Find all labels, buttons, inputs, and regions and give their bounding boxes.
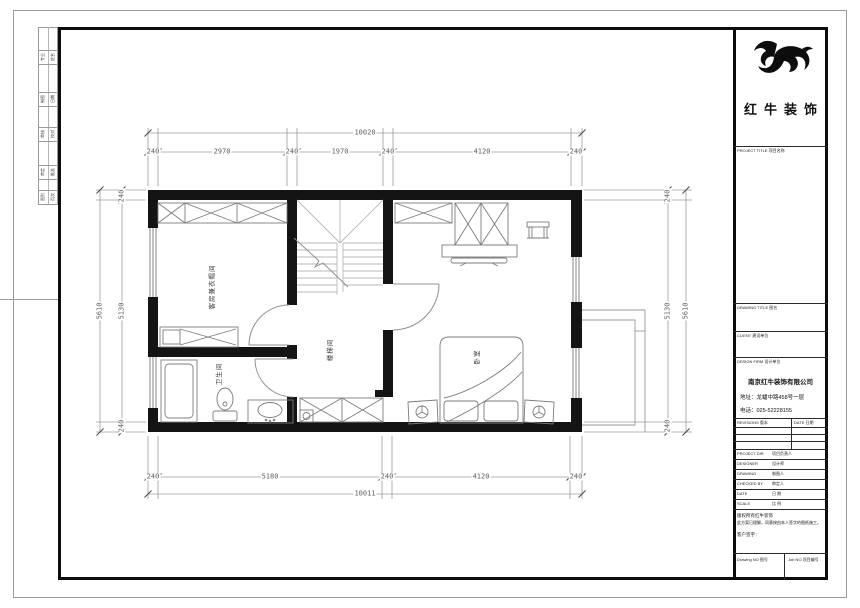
date-col-label: DATE 日期 — [794, 421, 813, 425]
company-phone: 电话：025-52228155 — [740, 406, 792, 414]
dim-top-chain-2: 240 — [285, 149, 300, 156]
dim-bottom-chain-3: 4120 — [472, 474, 491, 481]
row-designer-en: DESIGNER — [737, 462, 758, 466]
tb-vline — [784, 553, 785, 580]
job-no-label: Job NO 项目编号 — [788, 558, 819, 562]
dimension-lines — [96, 128, 692, 499]
bull-logo-icon — [747, 36, 813, 94]
tb-line — [733, 459, 828, 460]
row-project-dir-zh: 项目负责人 — [772, 452, 792, 456]
drawing-no-label: Drawing NO 图号 — [737, 558, 768, 562]
furniture — [158, 203, 554, 424]
disclaimer: 版权所有红牛装饰 此方案已理解，同意按由本人签字的图纸施工。 客户签字： — [737, 513, 821, 539]
tb-line — [733, 146, 828, 147]
dim-bottom-total: 10011 — [353, 491, 376, 498]
dim-left-chain-1: 5130 — [119, 302, 126, 321]
dim-bottom-chain-4: 240 — [569, 474, 584, 481]
disclaimer-line1: 版权所有红牛装饰 — [737, 513, 821, 520]
dim-top-chain-4: 240 — [381, 149, 396, 156]
dim-left-chain-0: 240 — [119, 189, 126, 204]
dim-top-chain-6: 240 — [569, 149, 584, 156]
tb-vline — [791, 418, 792, 449]
floor-plan — [0, 0, 860, 608]
row-drawing-zh: 制图人 — [772, 472, 784, 476]
room-label-stairwell: 楼梯间 — [328, 339, 335, 362]
room-label-bedroom: 卧室 — [475, 350, 482, 365]
tb-line — [733, 418, 828, 419]
client-label: CLIENT 建设单位 — [737, 334, 768, 338]
drawing-title-label: DRAWING TITLE 图名 — [737, 306, 777, 310]
stairs — [294, 200, 383, 295]
dim-bottom-chain-1: 5180 — [261, 474, 280, 481]
doors — [249, 284, 439, 397]
dim-right-chain-0: 240 — [665, 189, 672, 204]
drawing-sheet: 专业 姓名 制图 日期 审核 校对 审定 批准 图别 页次 — [0, 0, 860, 608]
row-checked-en: CHECKED BY — [737, 482, 763, 486]
row-scale-zh: 比 例 — [772, 502, 781, 506]
walls — [148, 190, 582, 432]
tb-line — [733, 489, 828, 490]
design-firm-label: DESIGN FIRM 设计单位 — [737, 360, 780, 364]
company-address: 地址：龙蟠中路458号一层 — [740, 393, 804, 401]
row-checked-zh: 审定人 — [772, 482, 784, 486]
room-label-bathroom: 卫生间 — [217, 363, 224, 386]
row-scale-en: SCALE — [737, 502, 750, 506]
tb-line — [733, 331, 828, 332]
tb-line — [733, 553, 828, 554]
tb-line — [733, 449, 828, 450]
dim-top-chain-3: 1970 — [331, 149, 350, 156]
tb-line — [733, 441, 828, 442]
row-drawing-en: DRAWING — [737, 472, 756, 476]
dim-top-chain-5: 4120 — [473, 149, 492, 156]
dim-left-chain-2: 240 — [119, 419, 126, 434]
row-project-dir-en: PROJECT DIR — [737, 452, 764, 456]
dim-top-total: 10020 — [353, 130, 376, 137]
window-glazing — [150, 228, 579, 408]
tb-line — [733, 303, 828, 304]
signature-label: 客户签字： — [737, 532, 821, 539]
tb-line — [733, 434, 828, 435]
dim-right-total: 5610 — [683, 302, 690, 321]
row-designer-zh: 设计师 — [772, 462, 784, 466]
tb-line — [733, 469, 828, 470]
dim-right-chain-1: 5130 — [665, 302, 672, 321]
brand-name: 红牛装饰 — [733, 99, 828, 118]
dim-bottom-chain-2: 240 — [380, 474, 395, 481]
project-title-label: PROJECT TITLE 项目名称 — [737, 149, 785, 153]
dim-top-chain-0: 240 — [146, 149, 161, 156]
revisions-label: REVISIONS 版本 — [737, 421, 768, 425]
dim-left-total: 5610 — [97, 302, 104, 321]
room-label-guestroom: 客房兼衣帽间 — [210, 265, 217, 310]
tb-line — [733, 479, 828, 480]
tb-line — [733, 427, 828, 428]
company-name: 南京红牛装饰有限公司 — [733, 376, 828, 386]
balcony — [582, 310, 645, 432]
tb-line — [733, 357, 828, 358]
dim-bottom-chain-0: 240 — [146, 474, 161, 481]
row-date-zh: 日 期 — [772, 492, 781, 496]
disclaimer-line2: 此方案已理解，同意按由本人签字的图纸施工。 — [737, 520, 821, 526]
tb-line — [733, 509, 828, 510]
dim-top-chain-1: 2970 — [213, 149, 232, 156]
row-date-en: DATE — [737, 492, 747, 496]
dim-right-chain-2: 240 — [665, 419, 672, 434]
tb-line — [733, 499, 828, 500]
